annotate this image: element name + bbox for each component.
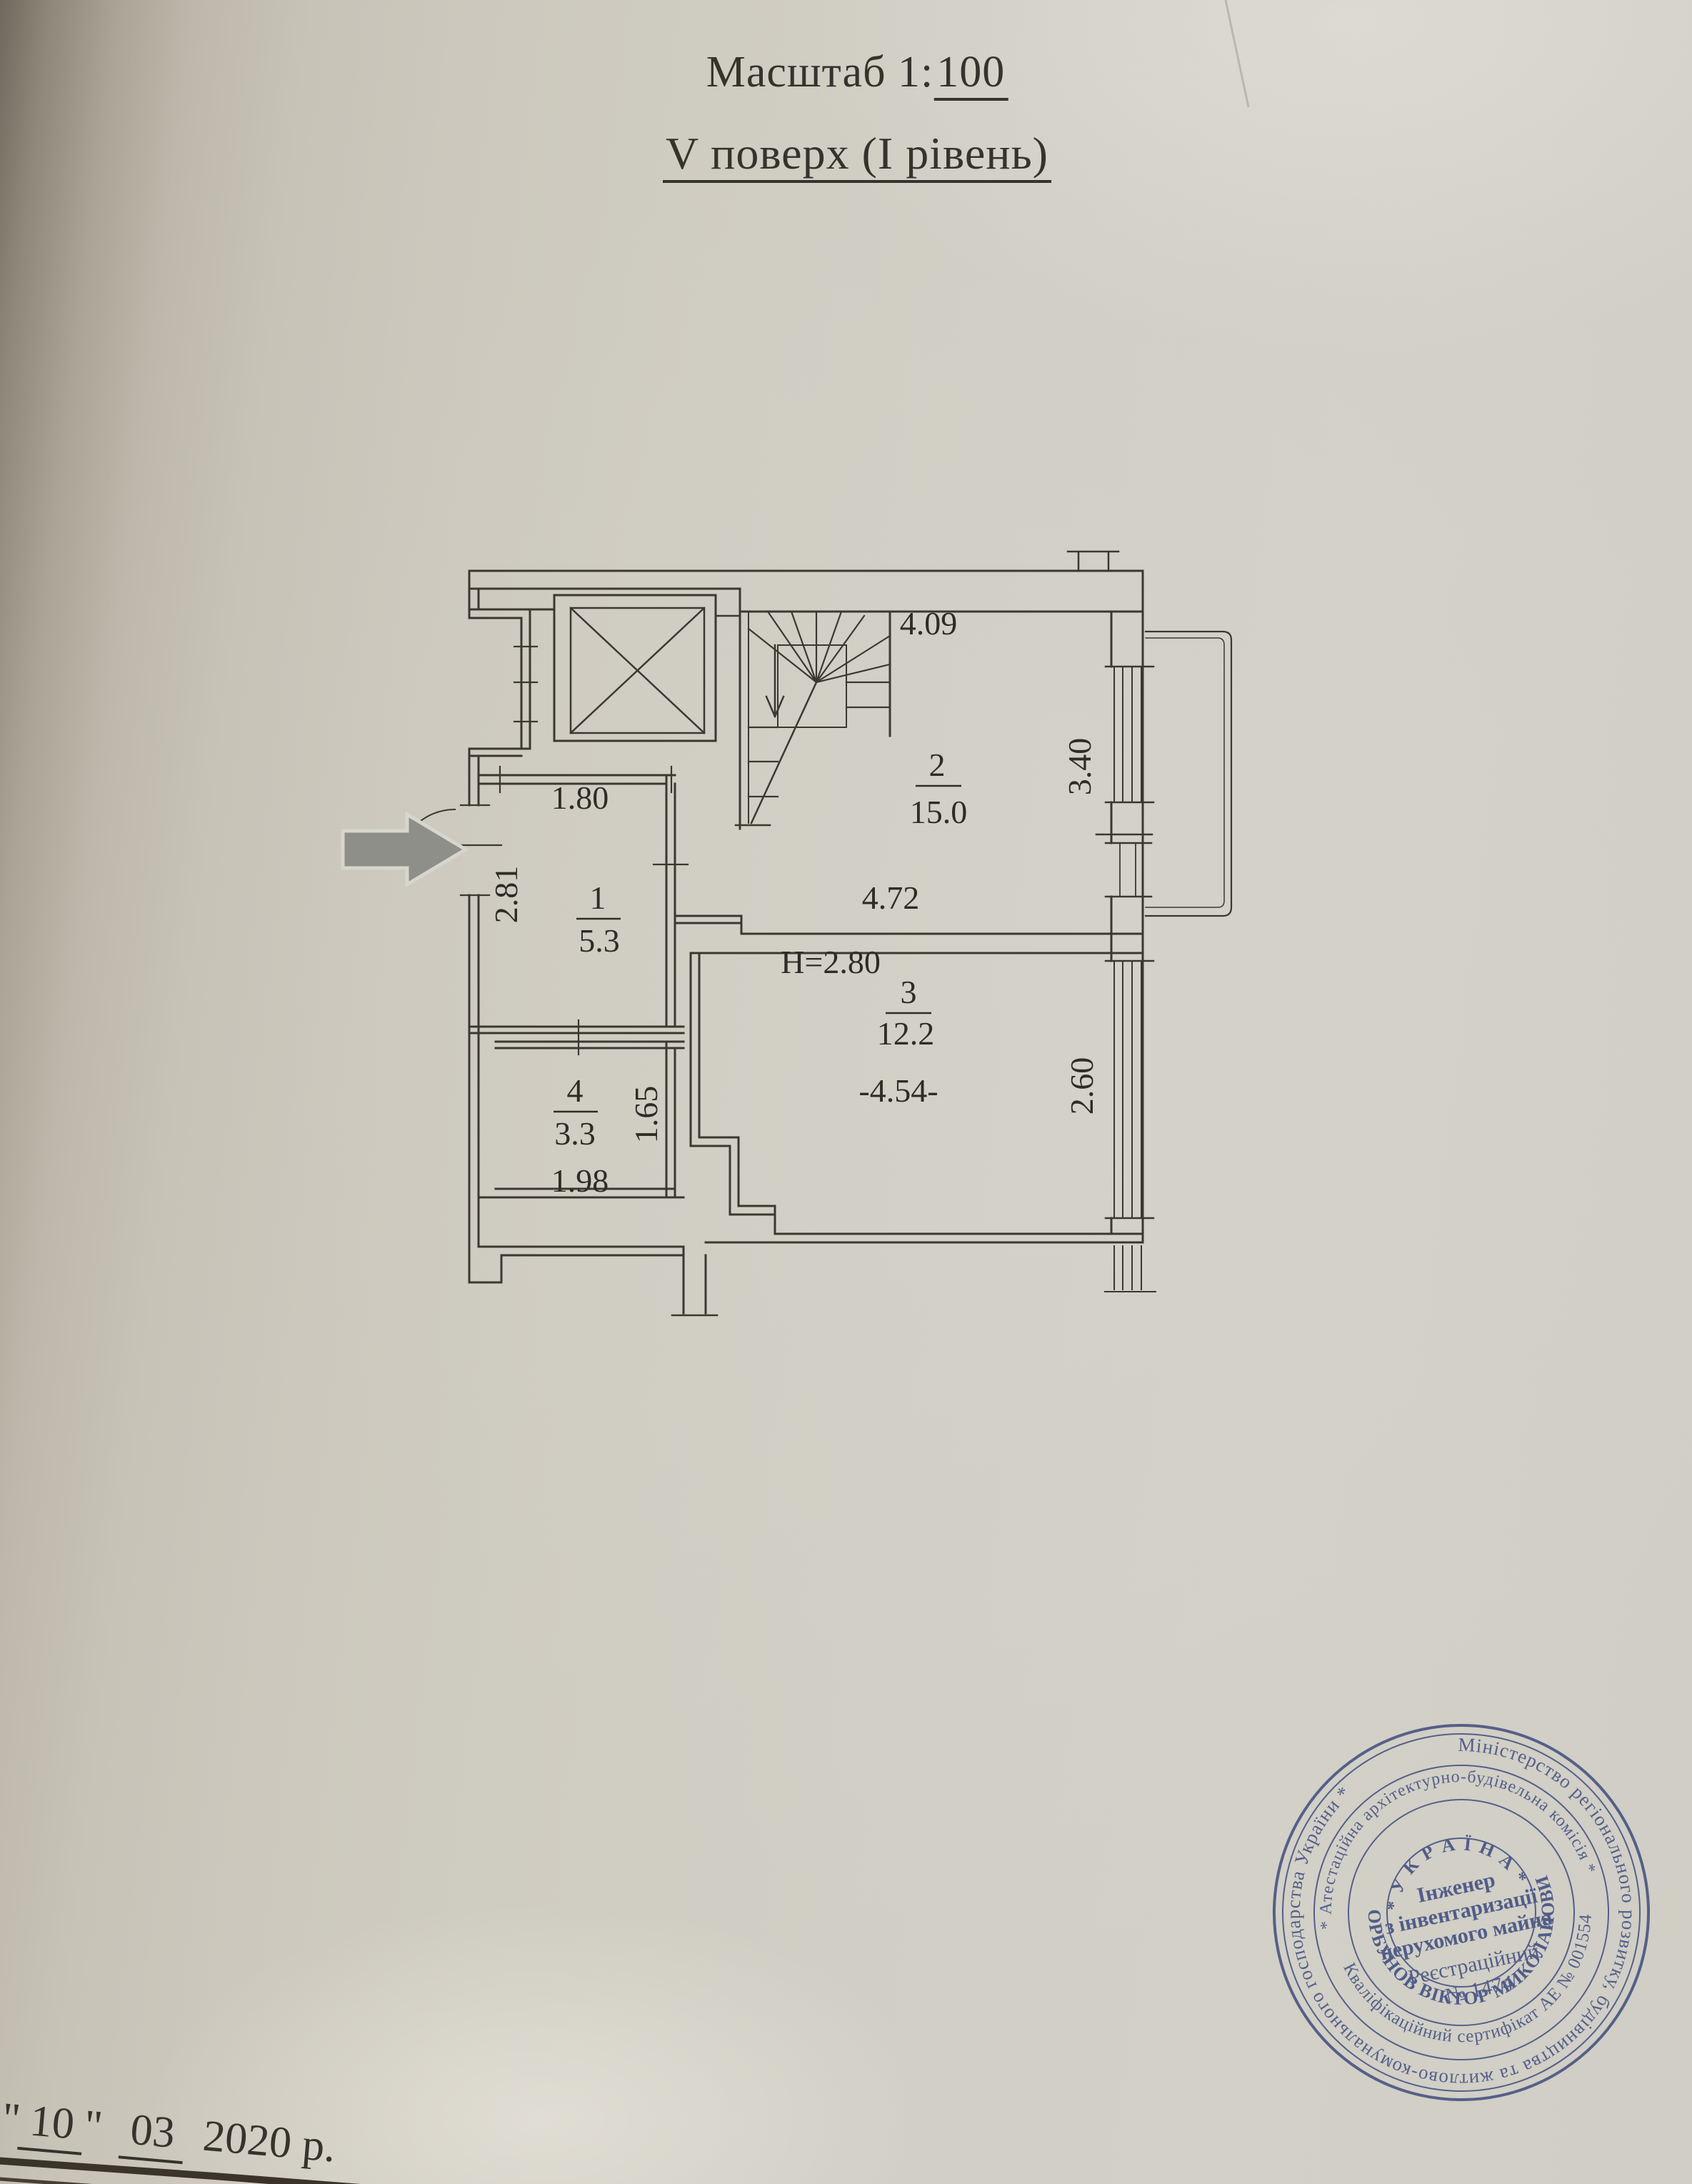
room3-number: 3 xyxy=(901,974,917,1010)
date-year: 2020 р. xyxy=(201,2112,338,2172)
window-260 xyxy=(1106,961,1153,1218)
room4-label: 4 3.3 xyxy=(554,1072,598,1152)
room1-area: 5.3 xyxy=(579,922,620,959)
room4-number: 4 xyxy=(567,1072,584,1109)
bottom-wall-right xyxy=(706,1234,1143,1242)
top-wall xyxy=(469,571,1143,612)
date-month: 03 xyxy=(118,2105,186,2165)
plan-labels: 4.09 1.80 2.81 4.72 3.40 H=2.80 -4.54- 2… xyxy=(488,605,1100,1199)
room1-number: 1 xyxy=(590,879,606,916)
right-wall xyxy=(890,571,1143,1242)
elevator-shaft xyxy=(554,595,740,741)
dim-room3-window: 2.60 xyxy=(1063,1057,1100,1115)
dim-room2-width: 4.72 xyxy=(862,879,920,916)
balcony xyxy=(1146,632,1231,916)
room3-label: 3 12.2 xyxy=(877,974,935,1052)
balcony-door xyxy=(1106,843,1151,897)
staircase xyxy=(736,612,890,829)
date-quote-close: " xyxy=(82,2101,104,2151)
elevator-x xyxy=(571,608,704,733)
stairs-down-arrow xyxy=(766,645,784,717)
paper-crease xyxy=(1226,0,1248,107)
window-340 xyxy=(1096,667,1153,834)
ceiling-height: H=2.80 xyxy=(781,944,881,980)
dim-room1-width: 1.80 xyxy=(551,779,609,816)
left-wall xyxy=(469,571,554,1282)
room4-area: 3.3 xyxy=(554,1115,596,1152)
room1-label: 1 5.3 xyxy=(576,879,621,959)
hall-zigzag xyxy=(691,953,775,1234)
room1-room4-divider xyxy=(469,1020,684,1054)
scanned-document-page: Масштаб 1:100 V поверх (І рівень) xyxy=(0,0,1692,2184)
entrance-arrow xyxy=(343,814,466,884)
floor-plan-svg: 4.09 1.80 2.81 4.72 3.40 H=2.80 -4.54- 2… xyxy=(0,0,1692,2184)
room2-label: 2 15.0 xyxy=(910,747,968,830)
date-day: 10 xyxy=(18,2095,86,2155)
dim-room1-depth: 2.81 xyxy=(488,866,524,924)
window-extension xyxy=(1105,1246,1156,1292)
room3-area: 12.2 xyxy=(877,1015,935,1052)
bottom-wall-left xyxy=(469,1247,717,1315)
dim-top-width: 4.09 xyxy=(900,605,958,642)
floor-plan xyxy=(398,552,1231,1315)
room2-room3-divider xyxy=(675,916,1143,953)
room2-number: 2 xyxy=(929,747,946,783)
dim-room3-width: -4.54- xyxy=(858,1072,938,1109)
dim-room4-depth: 1.65 xyxy=(628,1086,664,1144)
stamp: Міністерство регіонального розвитку, буд… xyxy=(1239,1690,1683,2134)
chimney-duct xyxy=(1068,552,1118,571)
room2-area: 15.0 xyxy=(910,794,968,830)
dim-room2-window: 3.40 xyxy=(1061,738,1098,796)
dim-room4-width: 1.98 xyxy=(551,1162,609,1199)
